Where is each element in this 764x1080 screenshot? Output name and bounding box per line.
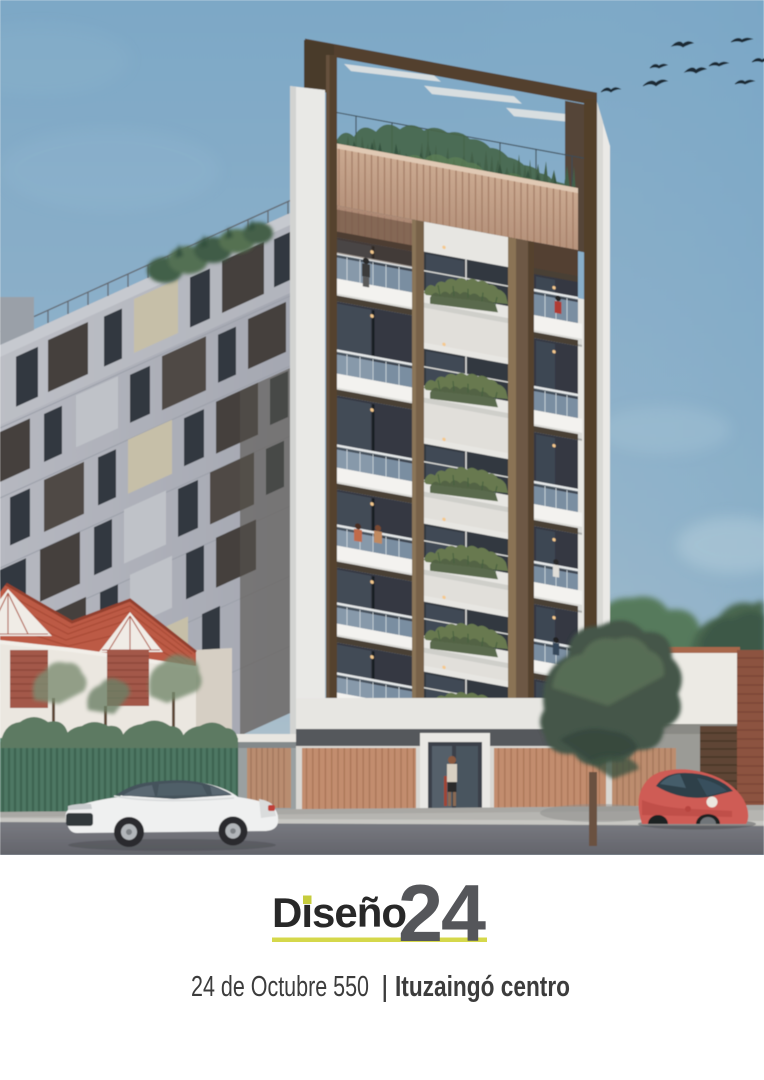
svg-text:24 de Octubre 550: 24 de Octubre 550	[191, 971, 369, 1003]
svg-text:Diseño: Diseño	[272, 889, 406, 936]
svg-text:|: |	[381, 971, 389, 1003]
svg-text:Ituzaingó centro: Ituzaingó centro	[395, 971, 570, 1003]
svg-text:24: 24	[398, 869, 486, 959]
